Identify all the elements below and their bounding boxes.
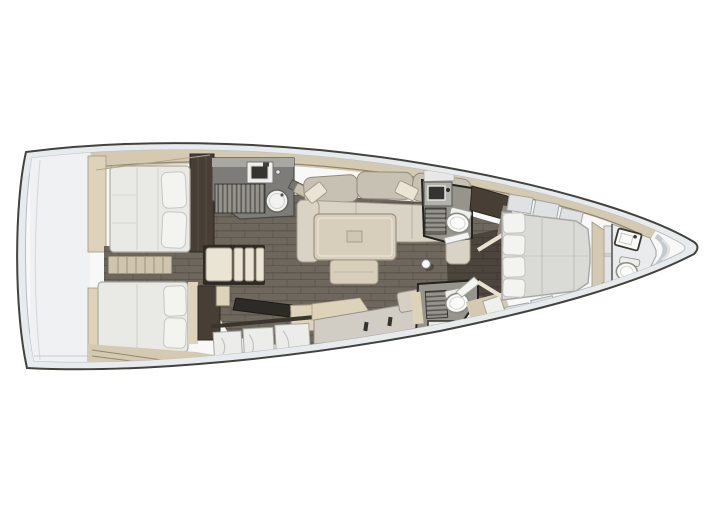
- faucet: [276, 170, 280, 174]
- faucet: [446, 188, 450, 192]
- transom-area: [30, 152, 90, 364]
- table-inlay: [347, 231, 362, 242]
- pillow: [161, 171, 187, 208]
- seat-pedestal: [216, 286, 230, 306]
- wardrobe: [190, 154, 214, 252]
- pillow: [163, 318, 186, 349]
- faucet: [440, 332, 443, 338]
- mast-post: [422, 260, 431, 269]
- foot-bench: [592, 222, 604, 290]
- yacht-floorplan: [0, 0, 710, 532]
- berth-pillows: [503, 213, 526, 298]
- aft-cabin-port: [96, 154, 214, 252]
- pillow: [161, 211, 187, 248]
- pillow: [163, 286, 186, 317]
- floorplan-svg: [0, 0, 710, 532]
